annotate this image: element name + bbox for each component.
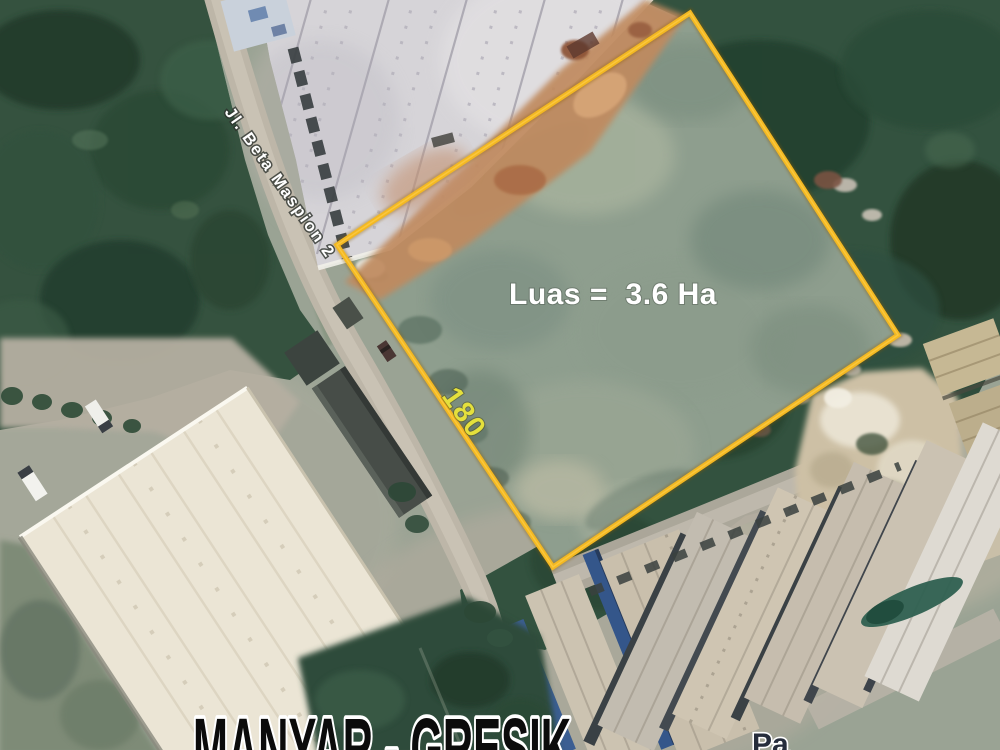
- satellite-map: Jl. Beta Maspion 2 180 Luas = 3.6 Ha Pa …: [0, 0, 1000, 750]
- partial-place-label: Pa: [752, 728, 789, 750]
- location-title: MANYAR - GRESIK: [193, 700, 571, 750]
- area-label: Luas = 3.6 Ha: [509, 278, 717, 311]
- satellite-listing-image: Jl. Beta Maspion 2 180 Luas = 3.6 Ha Pa …: [0, 0, 1000, 750]
